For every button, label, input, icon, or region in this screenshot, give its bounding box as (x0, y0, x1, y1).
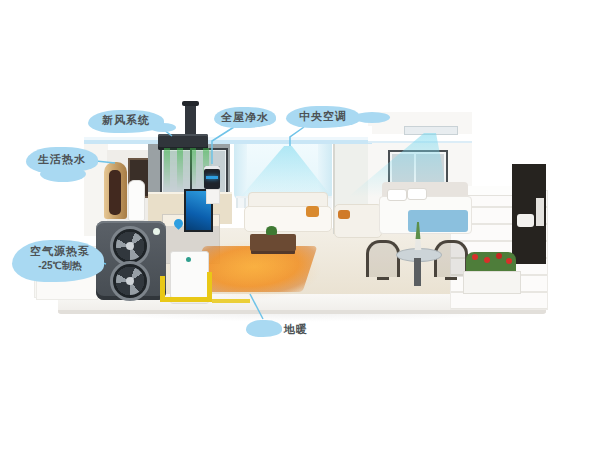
heat-pump-sublabel: -25℃制热 (10, 259, 110, 273)
pointer-lines (0, 0, 600, 450)
scene-canvas: 新风系统 全屋净水 中央空调 生活热水 空气源热泵 -25℃制热 地暖 (0, 0, 600, 450)
pointer-water-purifier (212, 127, 234, 164)
pointer-floor-heating (250, 294, 263, 319)
callout-fresh-air-label: 新风系统 (88, 113, 164, 128)
heat-pump-label: 空气源热泵 (30, 245, 90, 257)
callout-floor-heating (246, 320, 282, 337)
callout-water-purifier-label: 全屋净水 (214, 110, 276, 125)
pointer-central-ac (290, 127, 304, 146)
callout-hot-water-puff (40, 166, 86, 182)
callout-central-ac-label: 中央空调 (286, 109, 360, 124)
callout-floor-heating-label: 地暖 (284, 322, 308, 337)
pointer-hot-water (96, 161, 115, 163)
callout-hot-water-label: 生活热水 (26, 152, 98, 167)
callout-heat-pump-label: 空气源热泵 -25℃制热 (10, 244, 110, 273)
